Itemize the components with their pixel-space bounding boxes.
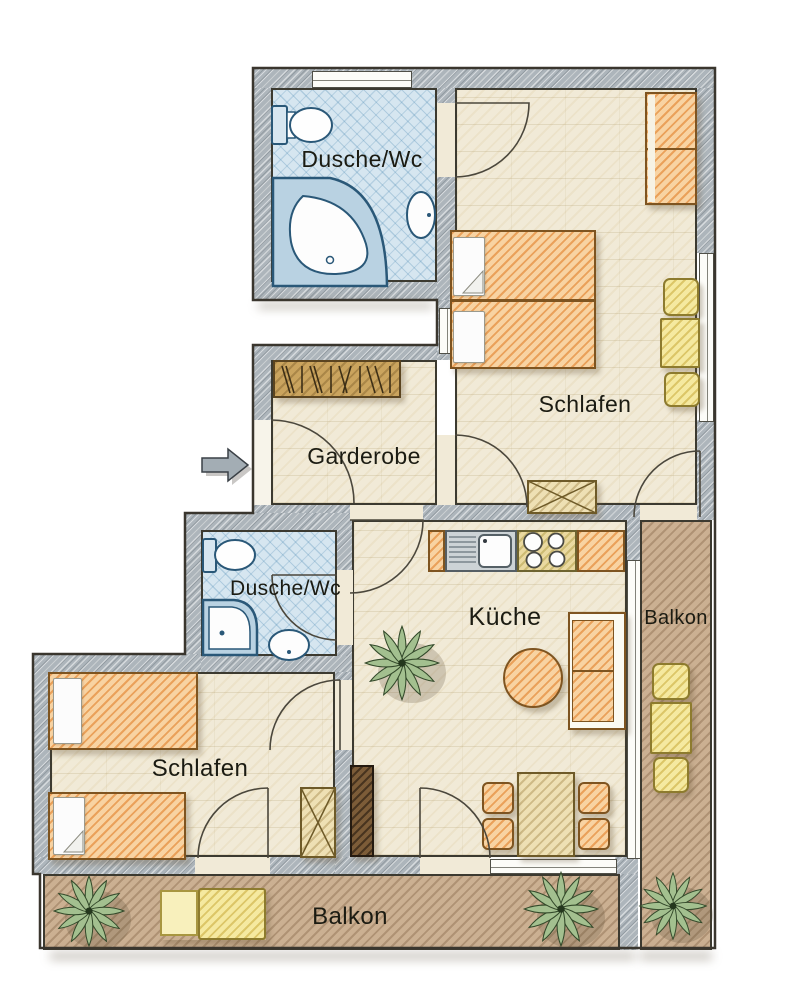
lounger-icon	[160, 888, 266, 940]
shadow	[258, 302, 433, 309]
wall-segment	[620, 874, 638, 950]
door-opening	[335, 680, 352, 750]
counter-icon	[428, 530, 445, 572]
floor-plan: Dusche/Wc Schlafen Garderobe Dusche/Wc K…	[0, 0, 800, 986]
chair-icon	[578, 782, 610, 814]
shadow	[640, 952, 712, 960]
pillow	[53, 797, 85, 855]
wall-segment	[697, 420, 715, 505]
door-opening	[253, 420, 271, 505]
wall-segment	[271, 282, 437, 300]
door-opening	[195, 857, 270, 874]
wall-segment	[185, 656, 353, 672]
chair-icon	[663, 278, 699, 316]
chair-icon	[482, 782, 514, 814]
wall-segment	[615, 857, 638, 874]
tall-cabinet-icon	[350, 765, 374, 857]
shadow	[50, 952, 635, 960]
window-icon	[312, 71, 412, 88]
wardrobe-icon	[645, 92, 697, 205]
wall-segment	[437, 88, 455, 103]
room-label-bath-top: Dusche/Wc	[278, 146, 446, 173]
wall-segment	[33, 654, 201, 672]
door-opening	[420, 857, 490, 874]
wall-segment	[185, 513, 352, 530]
wall-segment	[270, 857, 335, 874]
door-opening	[640, 505, 697, 520]
room-bath-top-floor	[271, 88, 437, 282]
dresser-icon	[527, 480, 597, 514]
table-icon	[660, 318, 700, 368]
chair-icon	[482, 818, 514, 850]
wall-segment	[627, 520, 640, 560]
round-table-icon	[503, 648, 563, 708]
room-label-bedroom-top: Schlafen	[518, 391, 652, 418]
sofa-icon	[568, 612, 626, 730]
room-label-balcony-right: Balkon	[638, 607, 714, 630]
wall-segment	[335, 857, 420, 874]
counter-icon	[577, 530, 625, 572]
kitchen-sink-icon	[445, 530, 517, 572]
chair-icon	[652, 663, 690, 700]
wall-segment	[697, 505, 715, 520]
wall-segment	[697, 88, 715, 253]
stove-icon	[517, 530, 577, 572]
room-label-bath-mid: Dusche/Wc	[208, 577, 363, 601]
chair-icon	[578, 818, 610, 850]
dining-table-icon	[517, 772, 575, 857]
door-opening	[350, 505, 423, 520]
room-label-kitchen: Küche	[438, 603, 572, 632]
wall-segment	[335, 672, 352, 680]
wall-segment	[185, 513, 201, 672]
chair-icon	[664, 372, 700, 407]
pillow	[53, 678, 82, 744]
pillow	[453, 311, 485, 363]
room-label-bedroom-bottom: Schlafen	[128, 755, 272, 783]
wall-segment	[337, 530, 353, 570]
dresser-icon	[300, 787, 336, 858]
entrance-arrow-icon	[202, 449, 252, 485]
wall-segment	[253, 88, 271, 300]
coat-rack-icon	[273, 360, 401, 398]
wall-segment	[253, 345, 271, 420]
table-icon	[650, 702, 692, 754]
window-icon	[490, 859, 617, 874]
window-icon	[699, 253, 714, 422]
chair-icon	[653, 757, 689, 793]
wall-segment	[253, 345, 437, 360]
room-label-balcony-bottom: Balkon	[278, 903, 422, 931]
pillow	[453, 237, 485, 296]
room-label-garderobe: Garderobe	[278, 443, 450, 470]
wall-segment	[337, 645, 353, 656]
